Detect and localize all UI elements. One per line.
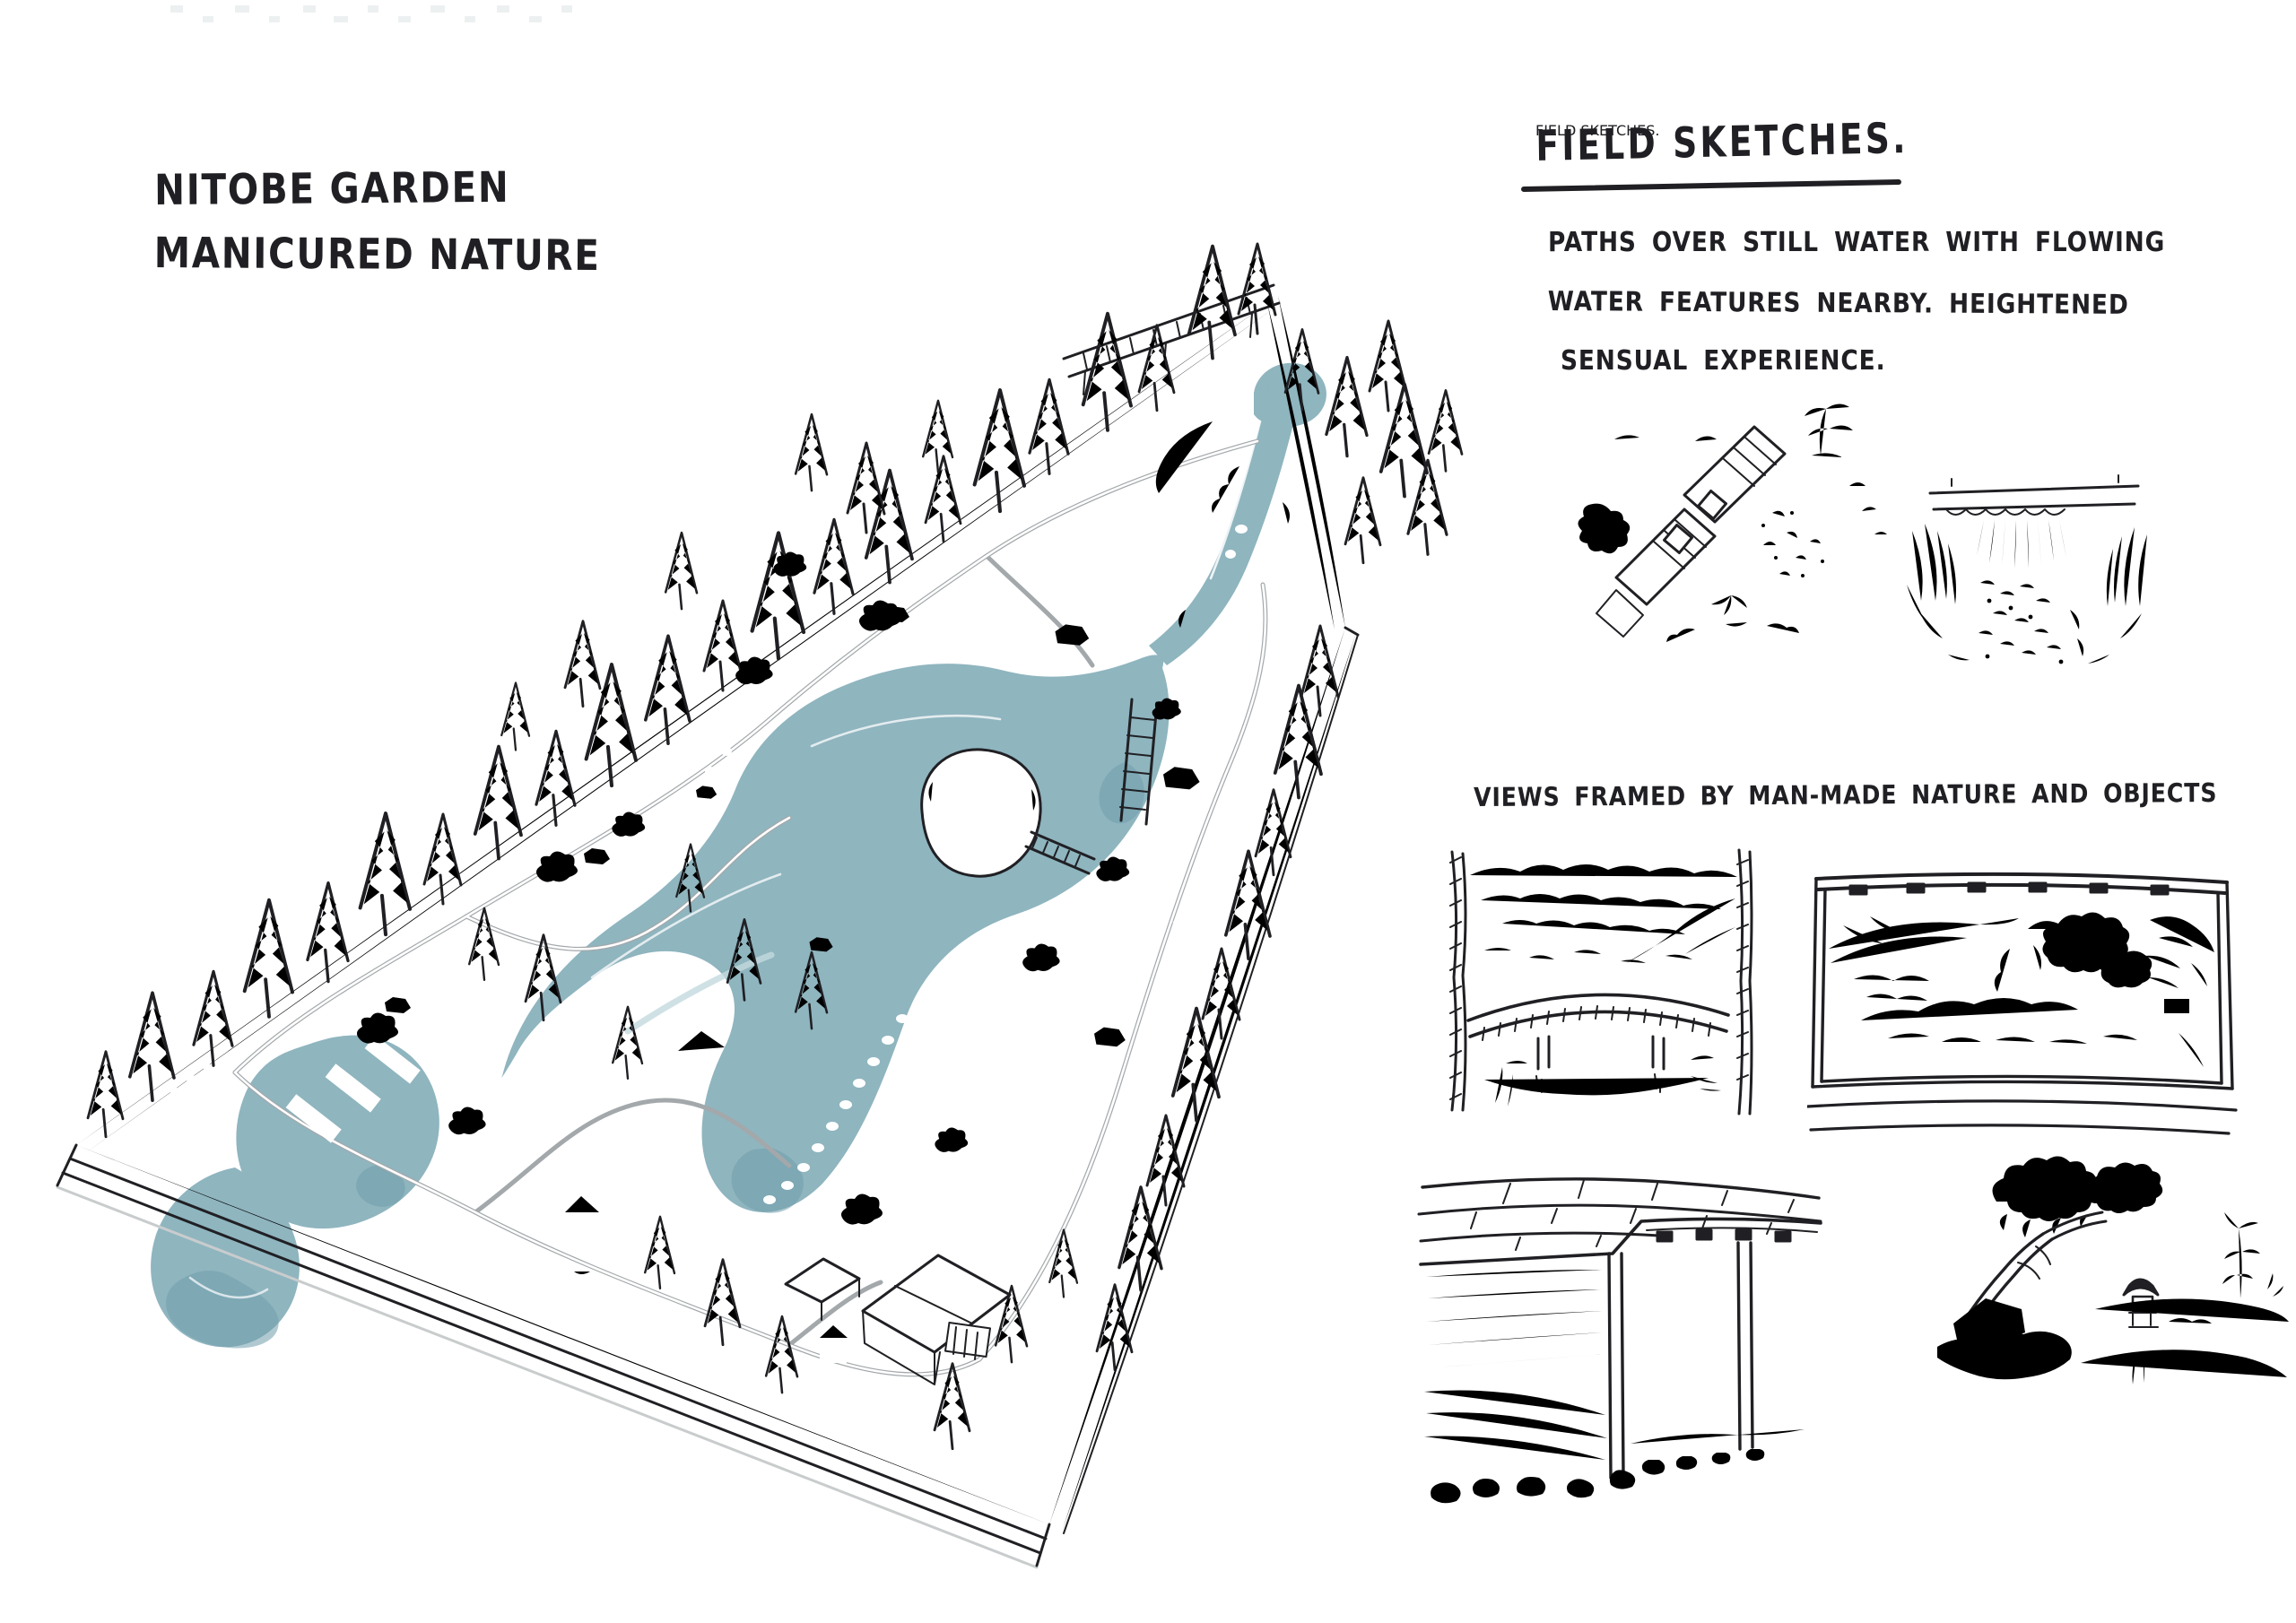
window-scene [1829,902,2214,1067]
field-sketch-waterfall [1894,468,2163,683]
framed-view-bridge [1431,845,1762,1118]
plan-title: NITOBE GARDEN MANICURED NATURE [154,160,674,285]
plan-title-line2: MANICURED NATURE [154,222,601,288]
faint-top-marks [170,5,572,22]
teahouse-window [1648,1316,1724,1374]
canopy-scribble [1470,864,1737,963]
field-sketches-heading-text: FIELD SKETCHES. [1535,114,1909,171]
ribbed-bridge [484,1055,545,1108]
teahouse-stones [1431,1449,1764,1503]
plan-title-line1: NITOBE GARDEN [154,156,601,222]
field-sketch-plank-path [1561,369,1901,661]
framed-view-window [1807,863,2238,1141]
small-hut [786,1259,859,1320]
teahouse-wall [1424,1266,1805,1460]
window-sill [1807,1101,2236,1133]
teahouse-roof [1419,1179,1821,1264]
small-tree-right [2222,1212,2283,1298]
teahouse [863,1255,1010,1384]
ground-path [2081,1298,2289,1388]
pine-canopy [1993,1156,2163,1237]
note-line: PATHS OVER STILL WATER WITH FLOWING [1548,213,2165,273]
window-frame [1813,874,2232,1089]
framed-view-teahouse [1417,1164,1825,1527]
arched-bridge [1468,994,1728,1092]
pine-rock [1937,1298,2072,1379]
sketch-sheet: NITOBE GARDEN MANICURED NATURE FIELD SKE… [0,0,2296,1623]
framed-views-caption: VIEWS FRAMED BY MAN-MADE NATURE AND OBJE… [1474,777,2217,812]
field-sketches-note: PATHS OVER STILL WATER WITH FLOWING WATE… [1548,213,2249,391]
framed-view-pine-lantern [1910,1155,2292,1424]
stone-lantern-small [820,1325,848,1376]
note-line: WATER FEATURES NEARBY. HEIGHTENED [1548,273,2165,335]
waterfall-lines [1977,520,2066,568]
